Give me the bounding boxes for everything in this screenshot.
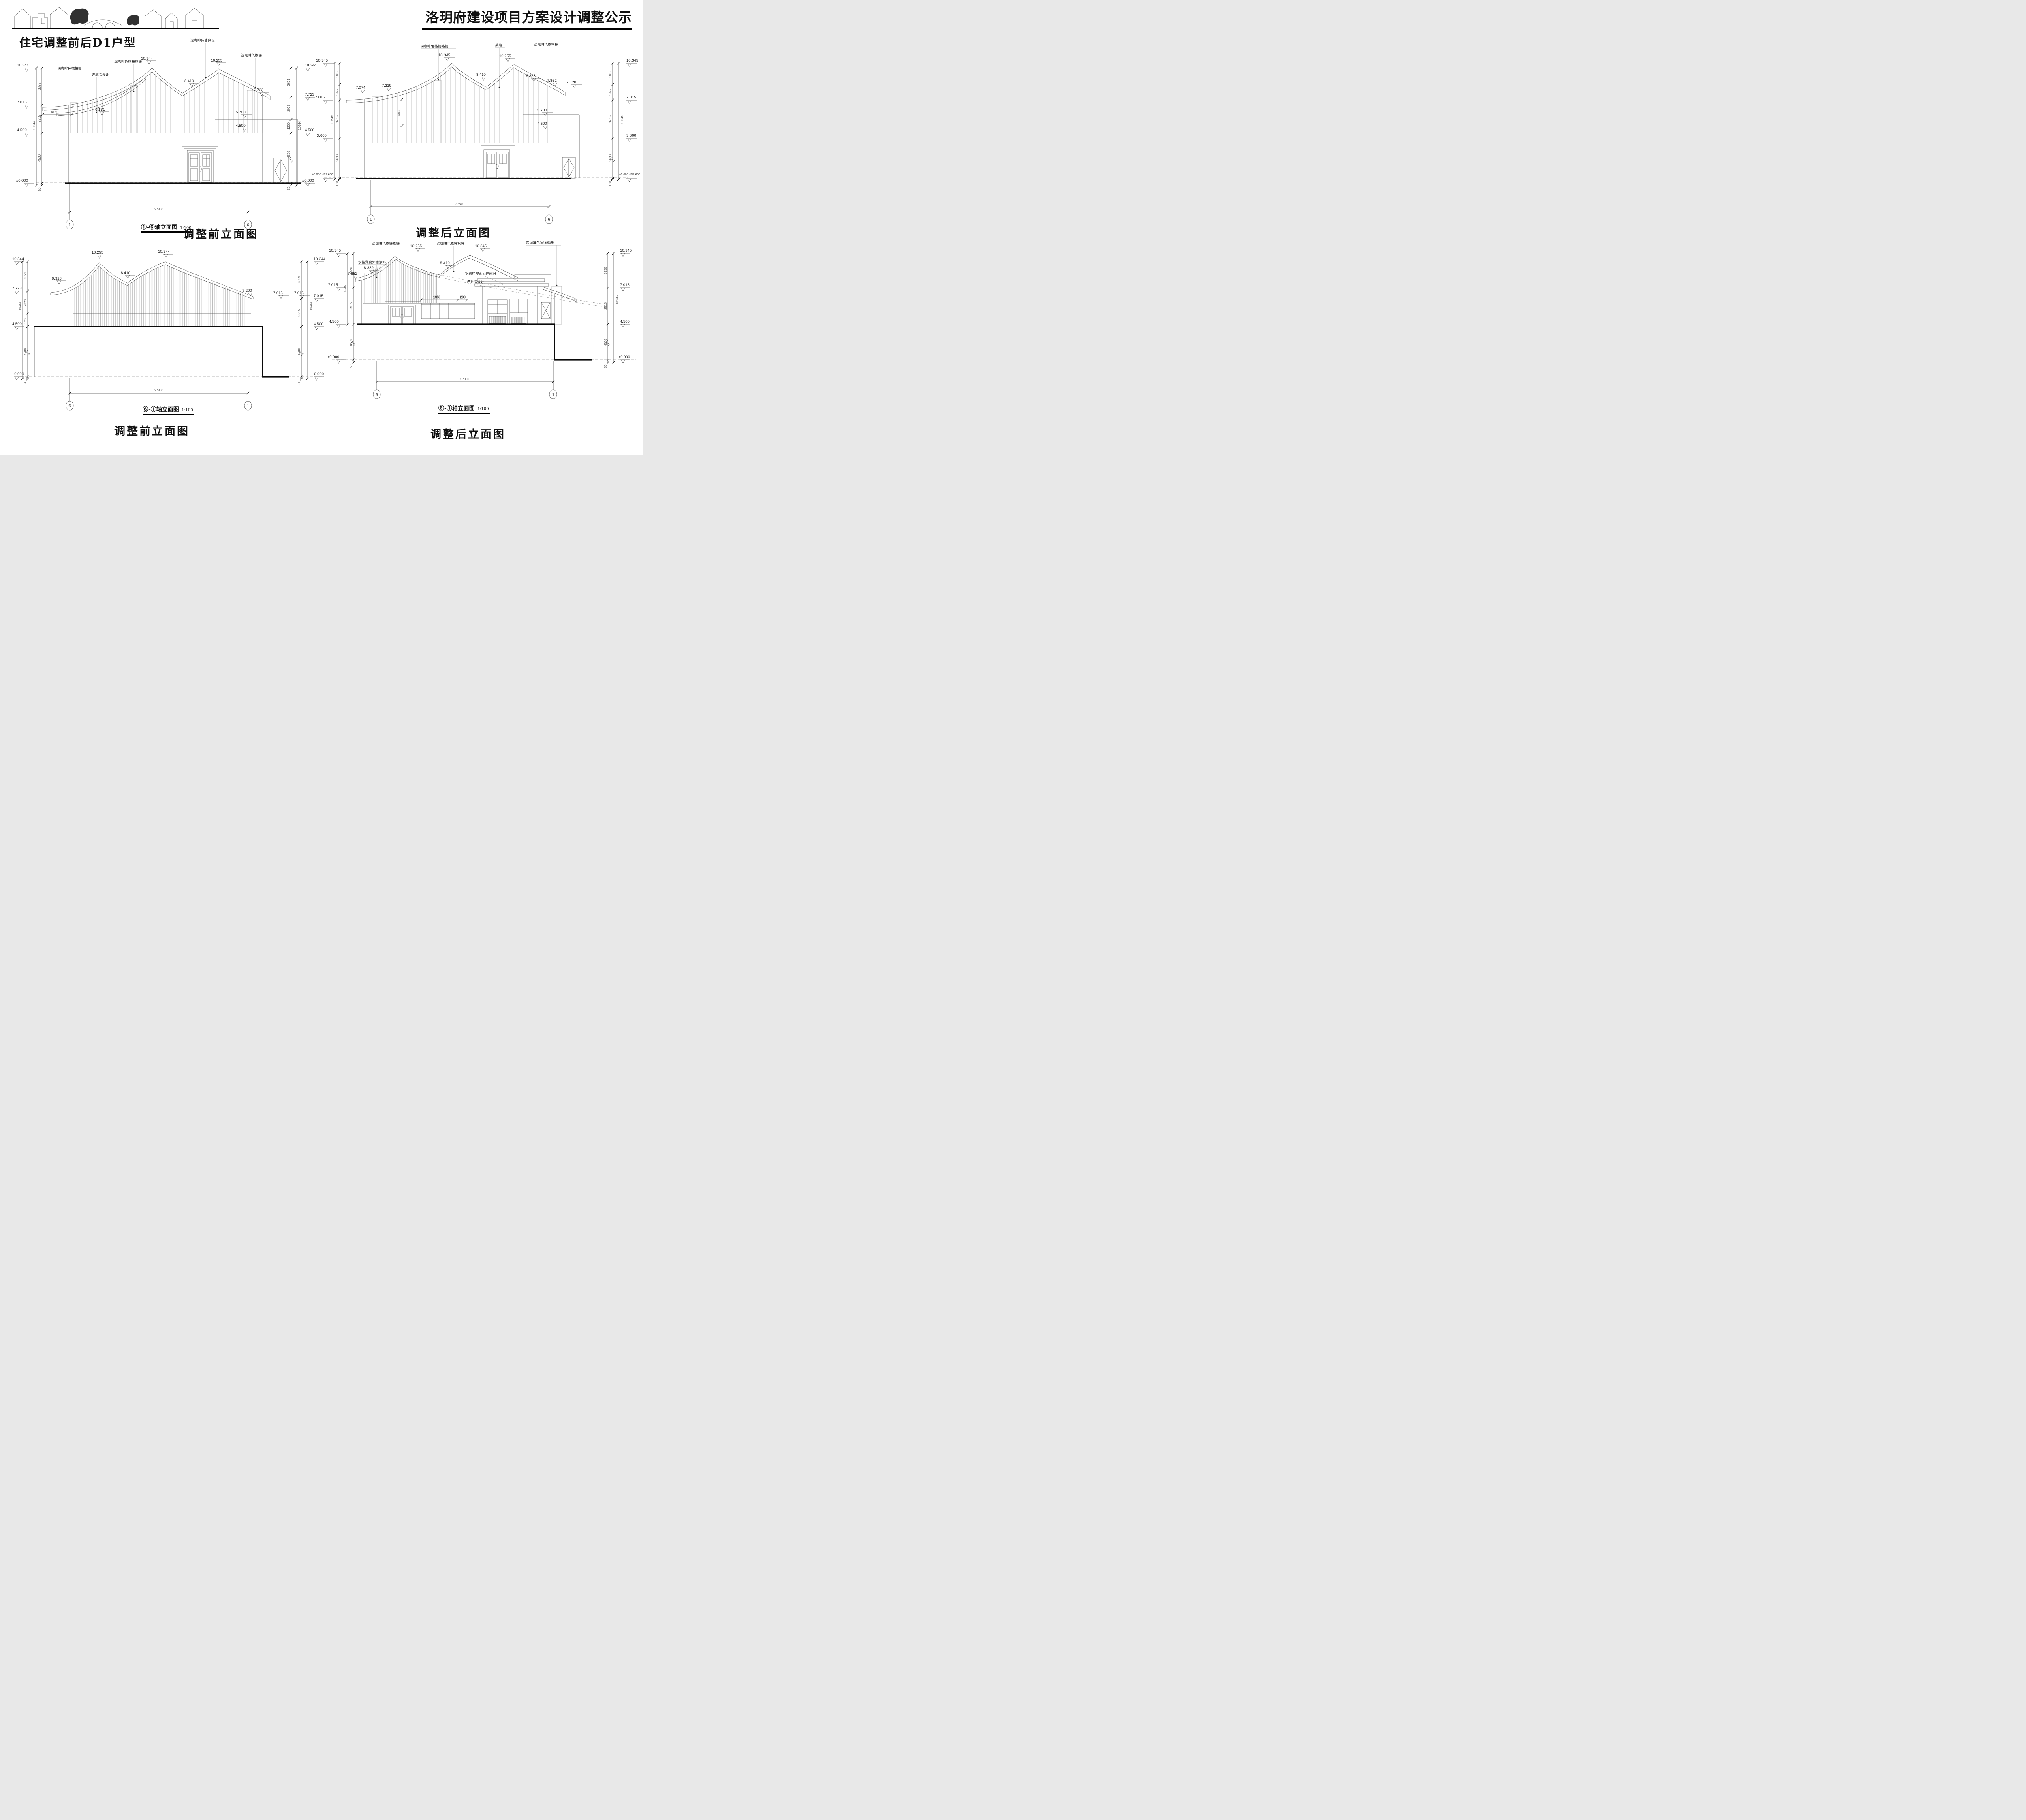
dim-text: 4500	[38, 154, 41, 162]
svg-text:7.015: 7.015	[328, 283, 338, 287]
siding-c	[73, 264, 251, 327]
svg-text:10.255: 10.255	[410, 244, 422, 248]
svg-text:100: 100	[336, 181, 339, 186]
dim-left-a: 3329 2515 4500 50 10344 10.344 7.015 4.5…	[16, 63, 73, 191]
svg-text:7.852: 7.852	[348, 272, 357, 276]
svg-text:4500: 4500	[24, 348, 27, 355]
svg-text:2621: 2621	[287, 79, 291, 86]
svg-text:8.410: 8.410	[476, 73, 486, 77]
grid-dims-a: 27800 1 6	[66, 184, 252, 229]
siding-b	[365, 66, 549, 143]
svg-text:3329: 3329	[297, 276, 301, 283]
svg-text:详幕墙设计: 详幕墙设计	[92, 73, 109, 77]
grid-bubble: 1	[247, 404, 249, 408]
axis-caption-text: ①-⑥轴立面图	[141, 224, 177, 231]
elevation-d-after-6-1: 1950 200 3330 2515 4500 50 5845	[324, 239, 643, 455]
svg-text:深咖啡色檐格栅: 深咖啡色檐格栅	[58, 66, 82, 71]
siding-d	[363, 259, 562, 324]
svg-text:4.500: 4.500	[620, 319, 630, 324]
svg-text:8.339: 8.339	[364, 266, 374, 270]
dim-text: 50	[38, 187, 41, 191]
span-dim: 27800	[455, 202, 465, 206]
diamond-door-b	[562, 157, 575, 178]
axis-scale-text: 1:100	[477, 407, 489, 411]
axis-caption-text: ⑥-①轴立面图	[143, 406, 179, 413]
svg-text:8.410: 8.410	[184, 79, 194, 83]
title-underline	[422, 28, 632, 30]
svg-text:10344: 10344	[309, 301, 313, 310]
svg-text:10.344: 10.344	[12, 257, 24, 261]
svg-text:1395: 1395	[336, 89, 339, 96]
svg-text:10.345: 10.345	[316, 58, 328, 63]
svg-text:幕墙: 幕墙	[495, 43, 502, 47]
dim-text: 2515	[38, 115, 41, 122]
svg-text:7.200: 7.200	[242, 289, 252, 293]
svg-text:2515: 2515	[297, 309, 301, 317]
diamond-door-a	[274, 158, 288, 183]
dim-left-b: 1935 1395 3415 3600 100 10345 10.345 7.0…	[312, 58, 341, 186]
svg-text:10345: 10345	[615, 295, 619, 304]
svg-text:7.852: 7.852	[547, 79, 557, 83]
grid-dims-d: 27800 6 1	[373, 361, 557, 399]
svg-text:深咖啡色格栅格栅: 深咖啡色格栅格栅	[437, 242, 465, 246]
grid-bubble: 1	[68, 223, 71, 227]
svg-text:10.344: 10.344	[141, 56, 153, 61]
svg-text:1935: 1935	[336, 71, 339, 78]
caption-title-b: 调整后立面图	[416, 224, 491, 240]
svg-text:4500: 4500	[349, 339, 353, 346]
svg-text:10.344: 10.344	[314, 257, 325, 261]
caption-title-d: 调整后立面图	[430, 426, 506, 441]
svg-text:深咖啡色油毡瓦: 深咖啡色油毡瓦	[190, 38, 215, 43]
svg-text:10345: 10345	[330, 115, 334, 124]
village-skyline-icon	[11, 4, 220, 30]
svg-text:2515: 2515	[604, 302, 607, 310]
caption-axis-d: ⑥-①轴立面图1:100	[438, 404, 489, 412]
axis-scale-text: 1:100	[182, 408, 193, 413]
svg-text:10.345: 10.345	[620, 248, 632, 253]
svg-text:7.015: 7.015	[626, 95, 636, 100]
svg-text:深咖啡色格栅格栅: 深咖啡色格栅格栅	[421, 44, 449, 48]
svg-text:±0.000: ±0.000	[327, 355, 339, 359]
svg-text:10345: 10345	[620, 115, 624, 124]
svg-text:2023: 2023	[24, 299, 27, 306]
svg-text:3.600: 3.600	[317, 133, 327, 138]
svg-text:7.015: 7.015	[315, 95, 325, 100]
caption-axis-c: ⑥-①轴立面图1:100	[143, 405, 193, 413]
svg-text:5845: 5845	[344, 285, 347, 292]
svg-text:7.015: 7.015	[620, 283, 630, 287]
grid-bubble: 6	[68, 404, 71, 408]
svg-text:钢结构屋面延伸部分: 钢结构屋面延伸部分	[465, 272, 496, 276]
caption-underline-d	[438, 413, 490, 414]
removed-roof-dash-d	[438, 275, 603, 306]
elevation-a-before-1-6: 3329 2515 4500 50 10344 10.344 7.015 4.5…	[12, 38, 320, 249]
svg-text:2621: 2621	[24, 272, 27, 279]
svg-text:8.338: 8.338	[526, 74, 536, 78]
eave-dim: 4150	[51, 110, 58, 114]
svg-text:4500: 4500	[297, 348, 301, 355]
dim-text: 200	[460, 295, 466, 299]
level-text: 7.015	[17, 100, 27, 105]
dim-text: 3329	[38, 83, 41, 90]
svg-text:深咖啡色格栅: 深咖啡色格栅	[241, 53, 262, 58]
svg-text:3415: 3415	[336, 115, 339, 123]
svg-text:10.344: 10.344	[158, 250, 170, 254]
dim-left-c: 2621 2023 1200 4500 50 10344 10.344 7.72…	[12, 257, 30, 384]
svg-text:100: 100	[609, 181, 612, 186]
svg-text:±0.000: ±0.000	[12, 372, 24, 376]
svg-text:50: 50	[297, 381, 301, 384]
svg-text:10.255: 10.255	[92, 250, 103, 255]
svg-text:10344: 10344	[18, 301, 22, 310]
level-text: ±0.000	[16, 178, 28, 183]
caption-title-a: 调整前立面图	[183, 225, 259, 241]
svg-text:10.345: 10.345	[475, 244, 487, 248]
svg-text:50: 50	[349, 364, 353, 368]
dim-left-d: 3330 2515 4500 50 5845 10.345 7.015 4.50…	[327, 248, 355, 368]
caption-title-c: 调整前立面图	[114, 422, 190, 438]
svg-text:10.345: 10.345	[329, 248, 341, 253]
svg-text:4.500: 4.500	[329, 319, 339, 324]
svg-text:±0.000: ±0.000	[618, 355, 630, 359]
door-a	[182, 146, 218, 183]
axis-caption-text: ⑥-①轴立面图	[438, 405, 475, 412]
svg-text:4.500: 4.500	[12, 322, 22, 326]
svg-text:2023: 2023	[287, 105, 291, 112]
svg-text:3415: 3415	[609, 115, 612, 123]
svg-text:1200: 1200	[24, 317, 27, 324]
dim-right-d: 3330 2515 4500 50 10345 10.345 7.015 4.5…	[604, 248, 632, 368]
svg-text:1935: 1935	[609, 71, 612, 78]
svg-text:10344: 10344	[298, 121, 301, 130]
sheet-title: 洛玥府建设项目方案设计调整公示	[413, 6, 632, 26]
svg-text:8.410: 8.410	[440, 261, 450, 265]
span-dim: 27800	[154, 207, 164, 211]
porch-d	[475, 275, 551, 324]
svg-text:7.015: 7.015	[273, 291, 283, 295]
elevation-b-after-1-6: 1935 1395 3415 3600 100 10345 10.345 7.0…	[312, 38, 643, 249]
svg-text:5.700: 5.700	[236, 110, 246, 115]
dim-right-b: 1935 1395 3415 3600 100 10345 10.345 7.0…	[609, 58, 640, 186]
svg-text:2515: 2515	[349, 302, 353, 310]
svg-text:1200: 1200	[287, 122, 291, 130]
svg-text:水性乳胶外墙涂料: 水性乳胶外墙涂料	[358, 260, 386, 264]
svg-text:深咖啡色格格栅: 深咖啡色格格栅	[534, 43, 558, 47]
door-d	[385, 302, 420, 324]
svg-text:7.723: 7.723	[254, 88, 263, 92]
siding-a	[69, 71, 263, 133]
dim-text: 1950	[433, 295, 440, 299]
svg-text:7.074: 7.074	[356, 86, 365, 90]
grid-bubble: 6	[548, 218, 550, 222]
podium-c	[34, 327, 289, 377]
svg-text:5.700: 5.700	[537, 108, 547, 113]
svg-text:8.328: 8.328	[52, 276, 62, 281]
svg-text:50: 50	[287, 186, 291, 190]
svg-text:3.600: 3.600	[626, 133, 636, 138]
door-b	[481, 145, 515, 178]
svg-text:4.500: 4.500	[236, 124, 246, 128]
svg-text:深咖啡色装饰格栅: 深咖啡色装饰格栅	[526, 241, 554, 245]
svg-text:深咖啡色格栅格栅: 深咖啡色格栅格栅	[372, 242, 400, 246]
svg-text:3330: 3330	[604, 267, 607, 274]
dim-total: 10344	[32, 121, 36, 130]
svg-text:4500: 4500	[287, 151, 291, 158]
svg-text:±0.000 432.600: ±0.000 432.600	[619, 173, 640, 176]
svg-text:3600: 3600	[336, 154, 339, 162]
podium-d	[357, 324, 592, 360]
eave-dim: 6070	[398, 109, 401, 116]
level-text: 10.344	[17, 63, 29, 68]
svg-text:深咖啡色格栅格栅: 深咖啡色格栅格栅	[114, 60, 142, 64]
svg-text:±0.000: ±0.000	[312, 372, 324, 376]
grid-bubble: 1	[552, 393, 554, 397]
svg-text:6.171: 6.171	[95, 107, 105, 112]
svg-text:10.345: 10.345	[438, 53, 450, 58]
dim-right-c: 3329 2515 4500 50 10344 10.344 7.015 4.5…	[297, 257, 325, 384]
svg-text:10.345: 10.345	[626, 58, 638, 63]
svg-text:详专项设计: 详专项设计	[467, 280, 484, 284]
svg-text:4500: 4500	[604, 339, 607, 346]
svg-text:±0.000 432.600: ±0.000 432.600	[312, 173, 333, 176]
svg-text:7.720: 7.720	[566, 80, 576, 85]
svg-text:4.500: 4.500	[537, 122, 547, 126]
svg-text:7.015: 7.015	[314, 294, 323, 298]
grid-bubble: 1	[370, 218, 372, 222]
svg-text:10.255: 10.255	[211, 58, 222, 63]
svg-text:50: 50	[604, 364, 607, 368]
span-dim: 27800	[154, 389, 164, 392]
grid-dims-b: 27800 1 6	[367, 180, 553, 224]
caption-underline-c	[143, 414, 194, 415]
level-text: 4.500	[17, 128, 27, 133]
drawing-sheet: 洛玥府建设项目方案设计调整公示 住宅调整前后D1户型	[0, 0, 643, 455]
svg-text:8.410: 8.410	[121, 271, 130, 275]
svg-text:10.255: 10.255	[499, 54, 511, 58]
svg-text:1395: 1395	[609, 89, 612, 96]
span-dim: 27800	[460, 377, 470, 381]
svg-text:3600: 3600	[609, 154, 612, 162]
svg-text:4.500: 4.500	[314, 322, 323, 326]
grid-bubble: 6	[376, 393, 378, 397]
svg-text:7.219: 7.219	[382, 83, 391, 88]
svg-text:50: 50	[24, 381, 27, 384]
svg-text:7.015: 7.015	[294, 291, 304, 295]
svg-text:7.723: 7.723	[12, 286, 22, 291]
